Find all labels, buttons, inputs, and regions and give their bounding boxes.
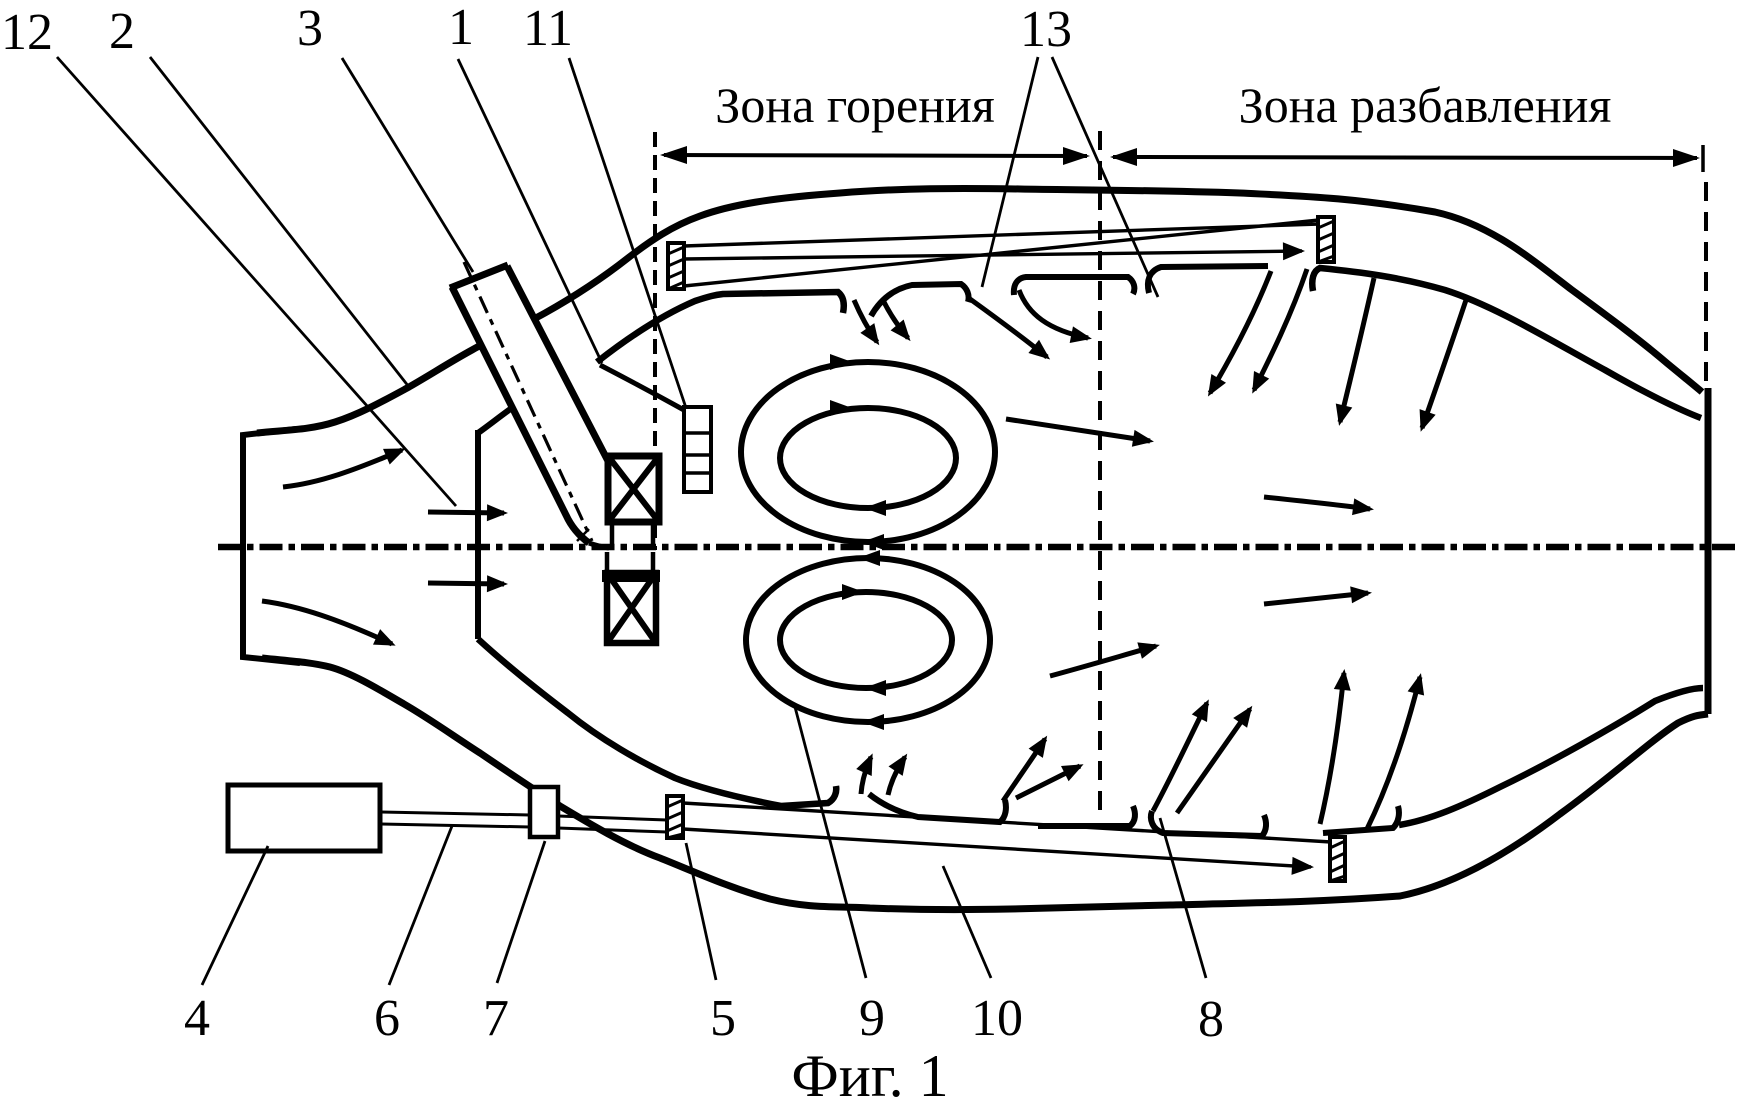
svg-text:6: 6 (374, 990, 400, 1047)
svg-text:3: 3 (297, 0, 323, 57)
svg-text:9: 9 (859, 990, 885, 1047)
svg-text:11: 11 (523, 0, 573, 57)
svg-text:Зона горения: Зона горения (715, 77, 994, 133)
svg-text:1: 1 (448, 0, 474, 56)
svg-text:Фиг. 1: Фиг. 1 (791, 1043, 948, 1102)
svg-text:7: 7 (483, 990, 509, 1047)
svg-text:2: 2 (109, 3, 135, 60)
svg-text:12: 12 (1, 4, 53, 61)
svg-text:8: 8 (1198, 991, 1224, 1048)
svg-text:4: 4 (184, 990, 210, 1047)
svg-text:Зона разбавления: Зона разбавления (1239, 77, 1612, 133)
svg-text:5: 5 (710, 990, 736, 1047)
svg-text:10: 10 (971, 990, 1023, 1047)
svg-text:13: 13 (1020, 1, 1072, 58)
